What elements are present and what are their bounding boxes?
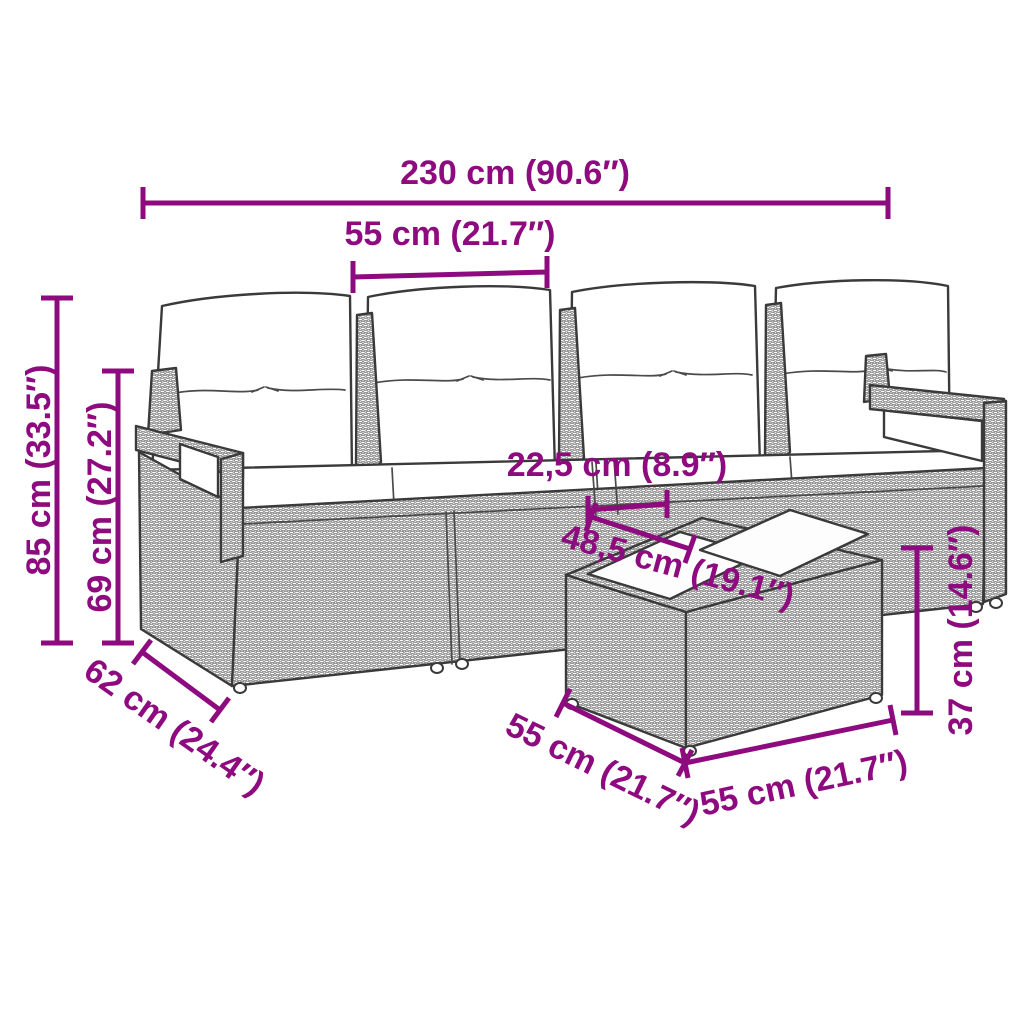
product-dimension-diagram: 230 cm (90.6″) 55 cm (21.7″) 85 cm (33.5… xyxy=(0,0,1024,1024)
base-foot xyxy=(234,683,246,693)
back-pillows xyxy=(152,280,950,474)
back-post-left xyxy=(148,368,181,435)
dim-seat-back-height: 69 cm (27.2″) xyxy=(81,371,134,643)
right-armrest-outer-post xyxy=(984,401,1006,602)
dim-seat-width: 55 cm (21.7″) xyxy=(345,215,556,293)
left-armrest-front-post xyxy=(221,453,243,562)
dim-label-module-gap: 22,5 cm (8.9″) xyxy=(507,446,727,484)
dim-overall-width: 230 cm (90.6″) xyxy=(143,154,888,219)
dim-overall-height: 85 cm (33.5″) xyxy=(20,298,73,643)
base-foot xyxy=(431,663,443,673)
table-foot xyxy=(870,693,882,703)
armrest-foot xyxy=(990,598,1002,608)
dim-label-seat-back-height: 69 cm (27.2″) xyxy=(81,402,119,613)
diagram-canvas: 230 cm (90.6″) 55 cm (21.7″) 85 cm (33.5… xyxy=(0,0,1024,1024)
dim-label-seat-width: 55 cm (21.7″) xyxy=(345,215,556,253)
dim-label-overall-width: 230 cm (90.6″) xyxy=(400,154,630,192)
dim-label-overall-height: 85 cm (33.5″) xyxy=(20,365,58,576)
base-foot xyxy=(456,659,468,669)
dim-label-table-height: 37 cm (14.6″) xyxy=(942,525,980,736)
